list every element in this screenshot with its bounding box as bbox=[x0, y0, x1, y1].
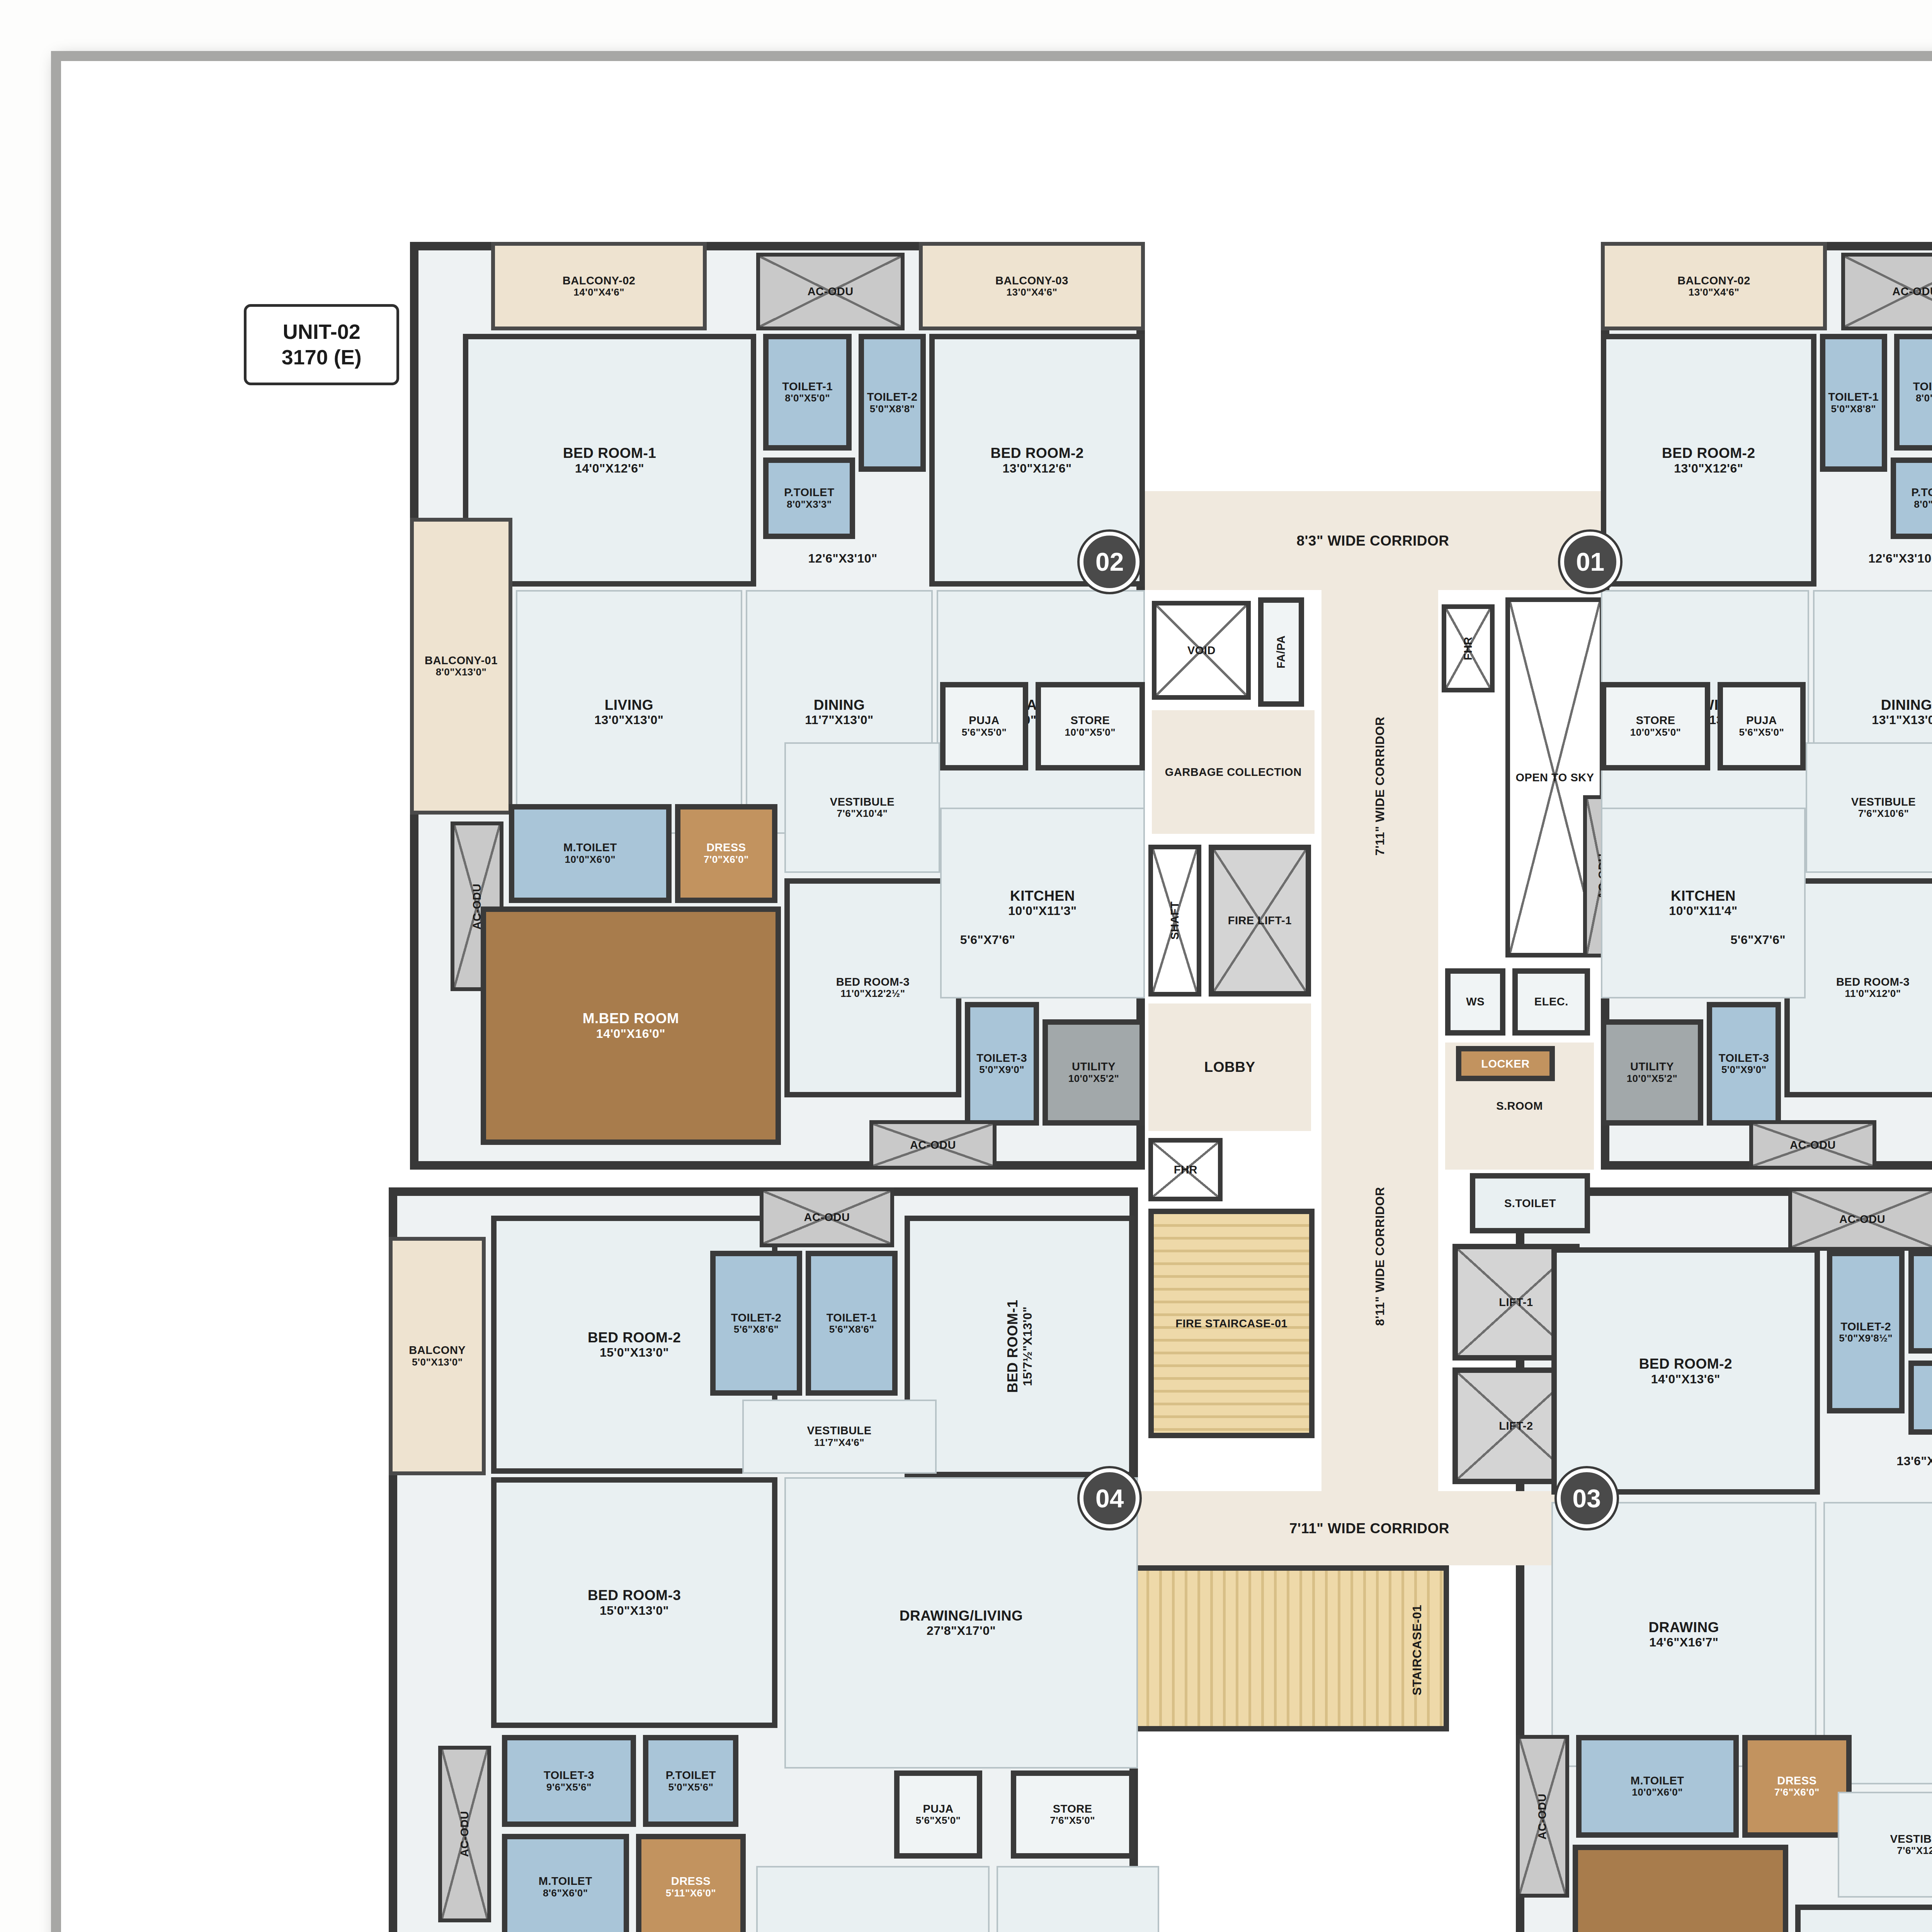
room-name-label: UTILITY bbox=[1072, 1060, 1116, 1073]
room-name-label: P.TOILET bbox=[1912, 486, 1932, 498]
room-dims-label: 5'0"X9'0" bbox=[1721, 1064, 1767, 1076]
room-name-label: VESTIBULE bbox=[1890, 1833, 1932, 1845]
room-name-label: DRESS bbox=[1777, 1774, 1816, 1787]
room-name-label: FA/PA bbox=[1275, 635, 1287, 668]
room-dims-label: 15'0"X13'0" bbox=[600, 1345, 669, 1360]
room-dims-label: 13'0"X4'6" bbox=[1007, 287, 1058, 298]
u1-bed-room-2-room: BED ROOM-213'0"X12'6" bbox=[1601, 334, 1816, 587]
room-dims-label: 8'11" WIDE CORRIDOR bbox=[1373, 1187, 1387, 1325]
u2-balcony-02-room: BALCONY-0214'0"X4'6" bbox=[491, 242, 707, 330]
room-dims-label: 13'0"X13'0" bbox=[594, 713, 663, 727]
room-name-label: OPEN TO SKY bbox=[1515, 771, 1594, 784]
u4-dining-room: DINING14'3"X19'6" bbox=[756, 1866, 990, 1932]
room-name-label: BED ROOM-2 bbox=[588, 1330, 681, 1345]
u1-label-room: 5'6"X7'6" bbox=[1696, 922, 1820, 957]
u3-p-toilet-room: P.TOILET8'0"X3'3½" bbox=[1908, 1361, 1932, 1435]
room-name-label: BALCONY-02 bbox=[563, 274, 636, 287]
room-name-label: WS bbox=[1466, 995, 1485, 1008]
room-name-label: KITCHEN bbox=[1671, 888, 1736, 904]
u3-drawing-room: DRAWING14'6"X16'7" bbox=[1551, 1502, 1816, 1767]
room-dims-label: 5'6"X5'0" bbox=[916, 1815, 961, 1827]
u4-bed-room-1-room: BED ROOM-115'7½"X13'0" bbox=[905, 1216, 1134, 1477]
room-name-label: TOILET-2 bbox=[731, 1311, 782, 1324]
core-fhr-room: FHR bbox=[1442, 604, 1495, 693]
room-dims-label: 7'0"X6'0" bbox=[704, 854, 749, 866]
core-void-room: VOID bbox=[1152, 601, 1251, 700]
u1-kitchen-room: KITCHEN10'0"X11'4" bbox=[1601, 808, 1806, 998]
unit-name: UNIT-02 bbox=[283, 320, 361, 343]
room-dims-label: 5'6"X5'0" bbox=[1739, 727, 1784, 738]
core-shaft-room: SHAFT bbox=[1148, 845, 1201, 997]
room-name-label: BALCONY bbox=[409, 1344, 466, 1356]
room-name-label: VESTIBULE bbox=[1851, 796, 1916, 808]
room-dims-label: 10'0"X11'3" bbox=[1008, 904, 1077, 918]
u4-bed-room-3-room: BED ROOM-315'0"X13'0" bbox=[491, 1477, 777, 1728]
u1-p-toilet-room: P.TOILET8'0"X3'3" bbox=[1891, 457, 1932, 539]
u4-dress-room: DRESS5'11"X6'0" bbox=[636, 1834, 746, 1932]
room-name-label: GARBAGE COLLECTION bbox=[1165, 766, 1302, 778]
room-dims-label: 8'0"X3'3" bbox=[787, 499, 832, 510]
room-dims-label: 11'7"X4'6" bbox=[814, 1437, 864, 1449]
u2-label-room: 12'6"X3'10" bbox=[760, 536, 926, 582]
room-dims-label: 8'0"X5'0" bbox=[785, 393, 830, 404]
room-name-label: M.TOILET bbox=[539, 1875, 592, 1887]
room-dims-label: 7'6"X12'6" bbox=[1897, 1845, 1932, 1857]
room-dims-label: 5'0"X8'8" bbox=[870, 403, 915, 415]
u1-toilet-2-room: TOILET-28'0"X5'0" bbox=[1894, 334, 1932, 451]
room-name-label: STORE bbox=[1070, 714, 1110, 726]
room-name-label: BED ROOM-1 bbox=[1004, 1300, 1020, 1393]
room-dims-label: 15'0"X13'0" bbox=[600, 1604, 669, 1618]
u4-toilet-3-room: TOILET-39'6"X5'6" bbox=[502, 1735, 636, 1827]
u2-kitchen-room: KITCHEN10'0"X11'3" bbox=[940, 808, 1145, 998]
u2-label-room: 5'6"X7'6" bbox=[926, 922, 1049, 957]
u2-m-toilet-room: M.TOILET10'0"X6'0" bbox=[509, 804, 672, 903]
u4-ac-odu-room: AC-ODU bbox=[760, 1187, 894, 1247]
room-dims-label: 10'0"X6'0" bbox=[1632, 1787, 1683, 1798]
room-dims-label: 5'0"X9'0" bbox=[979, 1064, 1024, 1076]
room-name-label: ELEC. bbox=[1534, 995, 1568, 1008]
room-name-label: DRESS bbox=[671, 1875, 711, 1887]
room-dims-label: 10'0"X5'2" bbox=[1627, 1073, 1678, 1085]
room-name-label: BED ROOM-3 bbox=[836, 976, 910, 988]
u1-balcony-02-room: BALCONY-0213'0"X4'6" bbox=[1601, 242, 1827, 330]
room-dims-label: 11'0"X12'0" bbox=[1845, 988, 1901, 1000]
u2-p-toilet-room: P.TOILET8'0"X3'3" bbox=[763, 457, 855, 539]
room-dims-label: 13'6"X3'9" bbox=[1896, 1454, 1932, 1468]
u3-toilet-2-room: TOILET-25'0"X9'8½" bbox=[1827, 1251, 1905, 1413]
u1-vestibule-room: VESTIBULE7'6"X10'6" bbox=[1806, 742, 1932, 873]
room-dims-label: 8'0"X5'0" bbox=[1916, 393, 1932, 404]
room-name-label: VESTIBULE bbox=[830, 796, 895, 808]
unit-number-badge-04: 04 bbox=[1080, 1468, 1139, 1528]
room-dims-label: 5'11"X6'0" bbox=[666, 1888, 716, 1899]
room-name-label: AC-ODU bbox=[1839, 1213, 1885, 1225]
room-name-label: PUJA bbox=[923, 1803, 953, 1815]
unit-number-badge-03: 03 bbox=[1557, 1468, 1617, 1528]
core-fa-pa-room: FA/PA bbox=[1258, 597, 1304, 707]
u1-label-room: 12'6"X3'10" bbox=[1820, 536, 1932, 582]
room-name-label: VESTIBULE bbox=[807, 1424, 871, 1437]
core-lobby-room: LOBBY bbox=[1148, 1003, 1311, 1131]
room-dims-label: 11'7"X13'0" bbox=[805, 713, 873, 727]
room-name-label: 7'11" WIDE CORRIDOR bbox=[1289, 1520, 1449, 1536]
room-dims-label: 8'0"X13'0" bbox=[436, 667, 487, 678]
room-name-label: SHAFT bbox=[1169, 901, 1181, 940]
room-name-label: AC-ODU bbox=[1536, 1793, 1549, 1839]
room-name-label: FHR bbox=[1174, 1163, 1197, 1176]
room-name-label: P.TOILET bbox=[784, 486, 834, 498]
u4-drawing-living-room: DRAWING/LIVING27'8"X17'0" bbox=[784, 1477, 1138, 1769]
room-name-label: LIVING bbox=[605, 697, 653, 713]
room-name-label: DRAWING bbox=[1649, 1619, 1719, 1635]
room-dims-label: 13'0"X12'6" bbox=[1003, 461, 1072, 476]
room-name-label: TOILET-1 bbox=[827, 1311, 877, 1324]
room-name-label: DRESS bbox=[706, 841, 746, 854]
room-dims-label: 5'6"X7'6" bbox=[960, 933, 1015, 947]
room-name-label: FIRE STAIRCASE-01 bbox=[1175, 1317, 1287, 1330]
room-name-label: UTILITY bbox=[1630, 1060, 1674, 1073]
room-dims-label: 5'0"X13'0" bbox=[412, 1357, 463, 1368]
u3-label-room: 13'6"X3'9" bbox=[1827, 1438, 1932, 1484]
room-name-label: DINING bbox=[814, 697, 865, 713]
room-dims-label: 14'0"X16'0" bbox=[596, 1027, 665, 1041]
u2-ac-odu-room: AC-ODU bbox=[869, 1120, 997, 1170]
u1-bed-room-3-room: BED ROOM-311'0"X12'0" bbox=[1784, 878, 1932, 1097]
room-dims-label: STAIRCASE-01 bbox=[1410, 1605, 1424, 1696]
u4-kitchen-room: KITCHEN13'0"X13'6" bbox=[997, 1866, 1159, 1932]
room-name-label: BED ROOM-3 bbox=[1836, 976, 1910, 988]
room-name-label: FHR bbox=[1462, 637, 1475, 660]
u1-toilet-1-room: TOILET-15'0"X8'8" bbox=[1820, 334, 1887, 472]
room-name-label: AC-ODU bbox=[458, 1811, 471, 1857]
room-dims-label: 7'11" WIDE CORRIDOR bbox=[1373, 717, 1387, 855]
u3-bed-room-2-room: BED ROOM-214'0"X13'6" bbox=[1551, 1247, 1820, 1495]
room-dims-label: 15'7½"X13'0" bbox=[1020, 1306, 1035, 1386]
room-dims-label: 14'6"X16'7" bbox=[1649, 1635, 1718, 1650]
room-dims-label: 5'6"X8'6" bbox=[734, 1324, 779, 1335]
room-name-label: TOILET-2 bbox=[1913, 380, 1932, 393]
room-dims-label: 13'0"X4'6" bbox=[1689, 287, 1740, 298]
unit-area: 3170 (E) bbox=[282, 346, 362, 369]
room-dims-label: 5'0"X5'6" bbox=[668, 1782, 714, 1793]
room-dims-label: 10'0"X5'0" bbox=[1065, 727, 1116, 738]
room-name-label: TOILET-1 bbox=[1828, 391, 1879, 403]
room-name-label: TOILET-3 bbox=[976, 1052, 1027, 1064]
core-7-11-wide-corridor-room: 7'11" WIDE CORRIDOR bbox=[1138, 1491, 1601, 1565]
u2-balcony-01-room: BALCONY-018'0"X13'0" bbox=[410, 518, 512, 815]
u4-m-toilet-room: M.TOILET8'6"X6'0" bbox=[502, 1834, 629, 1932]
u3-ac-odu-room: AC-ODU bbox=[1516, 1735, 1569, 1898]
room-dims-label: 10'0"X6'0" bbox=[565, 854, 616, 866]
room-name-label: AC-ODU bbox=[804, 1211, 850, 1223]
room-name-label: STORE bbox=[1636, 714, 1675, 726]
room-name-label: BALCONY-03 bbox=[995, 274, 1068, 287]
u1-ac-odu-room: AC-ODU bbox=[1841, 253, 1932, 330]
u3-toilet-1-room: TOILET-18'0"X5'10½" bbox=[1908, 1251, 1932, 1353]
room-name-label: LIFT-2 bbox=[1499, 1420, 1533, 1432]
room-dims-label: 10'0"X5'2" bbox=[1068, 1073, 1119, 1085]
core-ws-room: WS bbox=[1445, 968, 1505, 1036]
room-name-label: TOILET-3 bbox=[544, 1769, 594, 1781]
floor-plan-page: 8'3" WIDE CORRIDOR7'11" WIDE CORRIDOR7'1… bbox=[0, 0, 1932, 1932]
room-name-label: FIRE LIFT-1 bbox=[1228, 914, 1292, 927]
u4-ac-odu-room: AC-ODU bbox=[438, 1746, 491, 1922]
u2-store-room: STORE10'0"X5'0" bbox=[1036, 682, 1145, 770]
core-vlabel-room: STAIRCASE-01 bbox=[1389, 1569, 1445, 1732]
u2-toilet-3-room: TOILET-35'0"X9'0" bbox=[965, 1002, 1039, 1126]
core-8-3-wide-corridor-room: 8'3" WIDE CORRIDOR bbox=[1145, 491, 1601, 590]
core-fire-lift-1-room: FIRE LIFT-1 bbox=[1209, 845, 1311, 997]
room-dims-label: 10'0"X5'0" bbox=[1630, 727, 1681, 738]
room-dims-label: 14'0"X13'6" bbox=[1651, 1372, 1720, 1386]
u2-toilet-2-room: TOILET-25'0"X8'8" bbox=[859, 334, 926, 472]
room-name-label: AC-ODU bbox=[1790, 1139, 1836, 1151]
unit-02-label-box: UNIT-023170 (E) bbox=[244, 304, 399, 385]
room-name-label: PUJA bbox=[969, 714, 999, 726]
u4-balcony-room: BALCONY5'0"X13'0" bbox=[389, 1237, 486, 1475]
unit-number-badge-02: 02 bbox=[1080, 532, 1139, 592]
room-name-label: BED ROOM-3 bbox=[588, 1587, 681, 1603]
core-vlabel-room: 7'11" WIDE CORRIDOR bbox=[1321, 618, 1438, 954]
room-dims-label: 7'6"X5'0" bbox=[1050, 1815, 1095, 1827]
room-name-label: TOILET-2 bbox=[1840, 1320, 1891, 1333]
room-name-label: VOID bbox=[1187, 644, 1216, 656]
room-name-label: BED ROOM-2 bbox=[1662, 445, 1755, 461]
u3-m-toilet-room: M.TOILET10'0"X6'0" bbox=[1576, 1735, 1739, 1837]
room-dims-label: 27'8"X17'0" bbox=[927, 1624, 996, 1638]
room-dims-label: 7'6"X6'0" bbox=[1774, 1787, 1820, 1798]
room-name-label: PUJA bbox=[1746, 714, 1777, 726]
room-dims-label: 14'0"X4'6" bbox=[573, 287, 624, 298]
core-garbage-collection-room: GARBAGE COLLECTION bbox=[1152, 710, 1315, 834]
room-name-label: BED ROOM-2 bbox=[1639, 1356, 1732, 1372]
room-dims-label: 12'6"X3'10" bbox=[808, 551, 878, 566]
u1-puja-room: PUJA5'6"X5'0" bbox=[1718, 682, 1806, 770]
room-name-label: KITCHEN bbox=[1010, 888, 1075, 904]
core-vlabel-room: 8'11" WIDE CORRIDOR bbox=[1321, 1053, 1438, 1459]
room-dims-label: 5'6"X5'0" bbox=[962, 727, 1007, 738]
room-dims-label: 10'0"X11'4" bbox=[1669, 904, 1737, 918]
room-name-label: S.ROOM bbox=[1496, 1100, 1543, 1112]
room-name-label: M.TOILET bbox=[1631, 1774, 1684, 1787]
room-name-label: BED ROOM-1 bbox=[563, 445, 656, 461]
u3-bed-room-3-room: BED ROOM-310'6"X12'0" bbox=[1795, 1905, 1932, 1932]
room-name-label: TOILET-2 bbox=[867, 391, 918, 403]
room-name-label: STORE bbox=[1053, 1803, 1092, 1815]
room-name-label: P.TOILET bbox=[666, 1769, 716, 1781]
room-name-label: TOILET-1 bbox=[782, 380, 833, 393]
u2-toilet-1-room: TOILET-18'0"X5'0" bbox=[763, 334, 852, 451]
u1-store-room: STORE10'0"X5'0" bbox=[1601, 682, 1711, 770]
u2-puja-room: PUJA5'6"X5'0" bbox=[940, 682, 1029, 770]
room-name-label: 8'3" WIDE CORRIDOR bbox=[1296, 533, 1449, 549]
room-dims-label: 13'1"X13'0" bbox=[1872, 713, 1932, 727]
room-dims-label: 11'0"X12'2½" bbox=[840, 988, 905, 1000]
room-dims-label: 8'0"X3'3" bbox=[1914, 499, 1932, 510]
room-dims-label: 7'6"X10'4" bbox=[837, 808, 888, 820]
u2-utility-room: UTILITY10'0"X5'2" bbox=[1043, 1019, 1145, 1125]
room-name-label: AC-ODU bbox=[910, 1139, 956, 1151]
room-name-label: BALCONY-02 bbox=[1677, 274, 1750, 287]
u3-ac-odu-room: AC-ODU bbox=[1788, 1187, 1932, 1251]
u2-ac-odu-room: AC-ODU bbox=[756, 253, 905, 330]
room-name-label: BED ROOM-2 bbox=[990, 445, 1083, 461]
core-locker-room: LOCKER bbox=[1456, 1046, 1555, 1081]
u3-vestibule-room: VESTIBULE7'6"X12'6" bbox=[1838, 1792, 1932, 1898]
u4-toilet-2-room: TOILET-25'6"X8'6" bbox=[710, 1251, 802, 1396]
u4-puja-room: PUJA5'6"X5'0" bbox=[894, 1770, 983, 1859]
u1-utility-room: UTILITY10'0"X5'2" bbox=[1601, 1019, 1703, 1125]
u1-ac-odu-room: AC-ODU bbox=[1749, 1120, 1876, 1170]
u2-bed-room-3-room: BED ROOM-311'0"X12'2½" bbox=[784, 878, 961, 1097]
room-dims-label: 14'0"X12'6" bbox=[575, 461, 644, 476]
room-dims-label: 13'0"X12'6" bbox=[1674, 461, 1743, 476]
core-fire-staircase-01-room: FIRE STAIRCASE-01 bbox=[1148, 1209, 1315, 1438]
core-fhr-room: FHR bbox=[1148, 1138, 1223, 1202]
unit-number-badge-01: 01 bbox=[1560, 532, 1620, 592]
u4-store-room: STORE7'6"X5'0" bbox=[1011, 1770, 1134, 1859]
room-dims-label: 5'6"X8'6" bbox=[829, 1324, 874, 1335]
u4-p-toilet-room: P.TOILET5'0"X5'6" bbox=[643, 1735, 738, 1827]
room-name-label: TOILET-3 bbox=[1719, 1052, 1769, 1064]
u4-toilet-1-room: TOILET-15'6"X8'6" bbox=[806, 1251, 898, 1396]
room-dims-label: 12'6"X3'10" bbox=[1868, 551, 1932, 566]
room-name-label: DINING bbox=[1881, 697, 1932, 713]
room-name-label: S.TOILET bbox=[1504, 1197, 1556, 1209]
room-name-label: AC-ODU bbox=[1892, 285, 1932, 298]
u2-m-bed-room-room: M.BED ROOM14'0"X16'0" bbox=[481, 906, 781, 1145]
room-dims-label: 5'6"X7'6" bbox=[1731, 933, 1786, 947]
room-name-label: LOCKER bbox=[1481, 1058, 1529, 1070]
core-elec-room: ELEC. bbox=[1512, 968, 1590, 1036]
room-dims-label: 7'6"X10'6" bbox=[1858, 808, 1909, 820]
u3-dress-room: DRESS7'6"X6'0" bbox=[1742, 1735, 1852, 1837]
u2-vestibule-room: VESTIBULE7'6"X10'4" bbox=[784, 742, 940, 873]
room-dims-label: 5'0"X9'8½" bbox=[1839, 1333, 1893, 1344]
room-name-label: BALCONY-01 bbox=[425, 654, 498, 667]
u2-dress-room: DRESS7'0"X6'0" bbox=[675, 804, 777, 903]
room-name-label: DRAWING/LIVING bbox=[900, 1608, 1023, 1624]
room-name-label: M.TOILET bbox=[563, 841, 617, 854]
room-name-label: LIFT-1 bbox=[1499, 1296, 1533, 1308]
u3-m-bed-room-room: M.BED ROOM15'0"X18'0" bbox=[1573, 1845, 1788, 1932]
u2-balcony-03-room: BALCONY-0313'0"X4'6" bbox=[919, 242, 1145, 330]
floor-plan-canvas: 8'3" WIDE CORRIDOR7'11" WIDE CORRIDOR7'1… bbox=[0, 0, 1932, 1932]
room-name-label: M.BED ROOM bbox=[583, 1010, 679, 1026]
u1-toilet-3-room: TOILET-35'0"X9'0" bbox=[1707, 1002, 1781, 1126]
room-dims-label: 5'0"X8'8" bbox=[1831, 403, 1876, 415]
room-dims-label: 8'6"X6'0" bbox=[543, 1888, 588, 1899]
u2-living-room: LIVING13'0"X13'0" bbox=[516, 590, 742, 834]
room-name-label: AC-ODU bbox=[808, 285, 854, 298]
core-s-toilet-room: S.TOILET bbox=[1470, 1173, 1590, 1233]
room-name-label: LOBBY bbox=[1204, 1059, 1255, 1075]
u4-vestibule-room: VESTIBULE11'7"X4'6" bbox=[742, 1400, 937, 1474]
room-dims-label: 9'6"X5'6" bbox=[546, 1782, 592, 1793]
